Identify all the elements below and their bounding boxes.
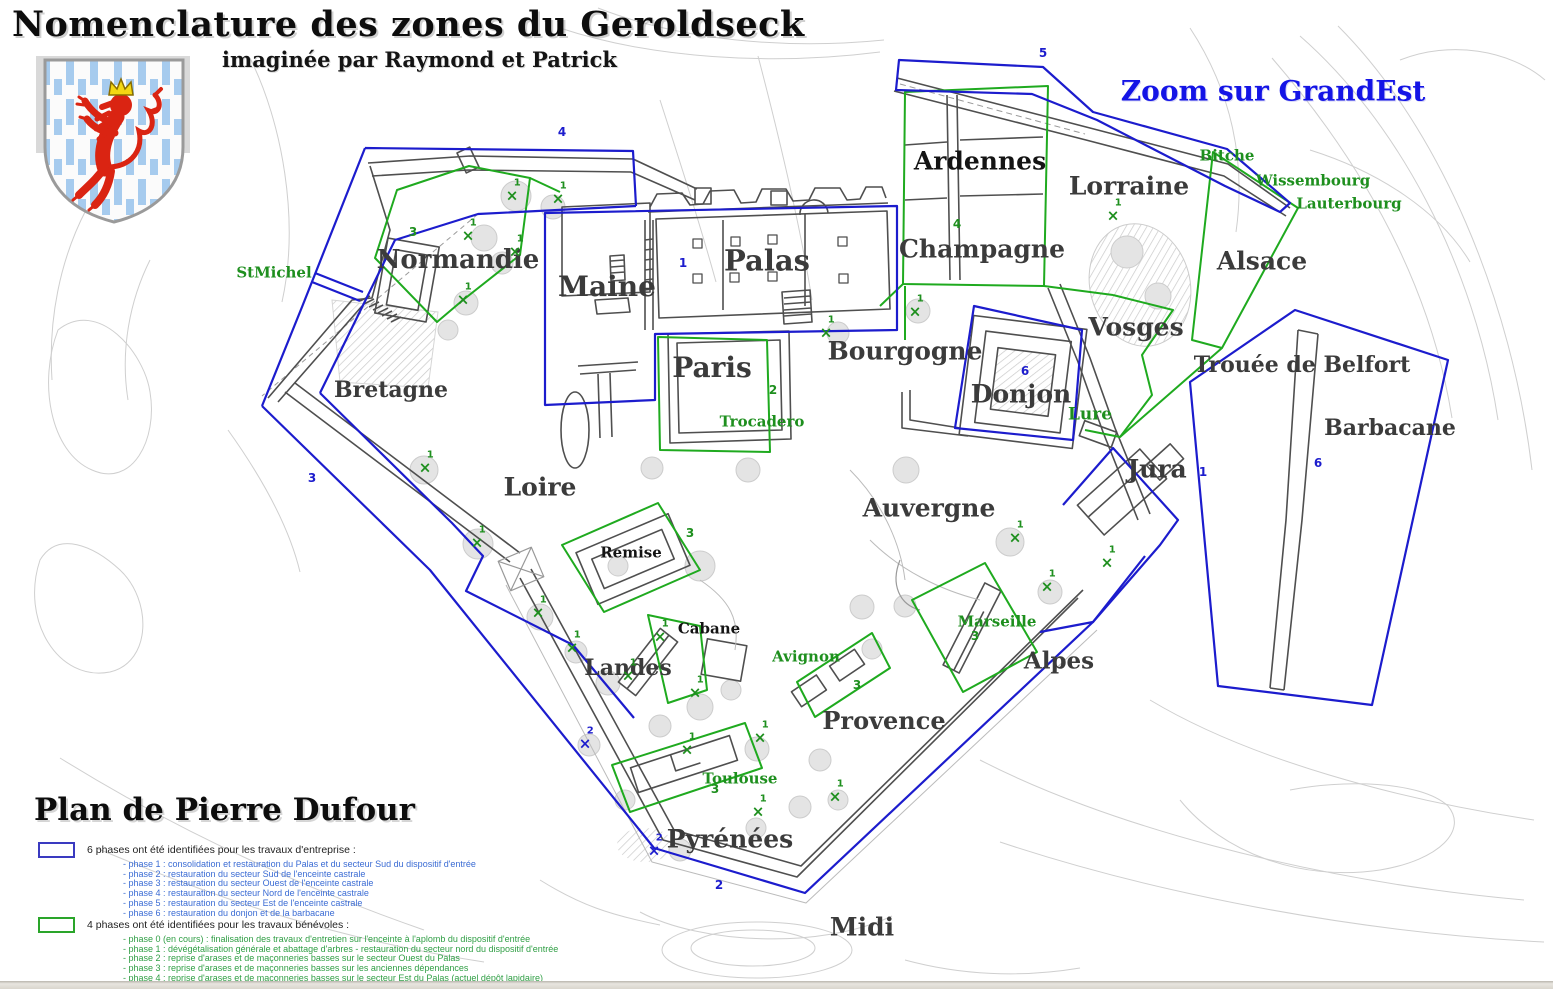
page-subtitle: imaginée par Raymond et Patrick [222, 47, 617, 72]
phase-polygons-entreprise [262, 60, 1448, 893]
tree-blobs [410, 181, 1171, 861]
green-phase-swatch [38, 917, 75, 933]
legend-benevoles-lines: - phase 0 (en cours) : finalisation des … [123, 935, 558, 984]
legend-entreprise: 6 phases ont été identifiées pour les tr… [38, 842, 476, 918]
legend-entreprise-header: 6 phases ont été identifiées pour les tr… [87, 844, 356, 856]
geroldseck-zone-map: Nomenclature des zones du Geroldseck ima… [0, 0, 1553, 989]
legend-benevoles-header: 4 phases ont été identifiées pour les tr… [87, 919, 349, 931]
bottom-edge-strip [0, 981, 1553, 989]
page-title: Nomenclature des zones du Geroldseck [12, 4, 805, 45]
shield-shape [45, 60, 183, 222]
plan-credit-title: Plan de Pierre Dufour [34, 792, 415, 828]
coat-of-arms [38, 55, 190, 227]
castle-plan-drawing [0, 0, 1553, 989]
blue-phase-swatch [38, 842, 75, 858]
terrain-contours [35, 8, 1545, 978]
grandest-zoom-label: Zoom sur GrandEst [1121, 75, 1426, 108]
legend-entreprise-lines: - phase 1 : consolidation et restauratio… [123, 860, 476, 918]
legend-benevoles: 4 phases ont été identifiées pour les tr… [38, 917, 558, 984]
